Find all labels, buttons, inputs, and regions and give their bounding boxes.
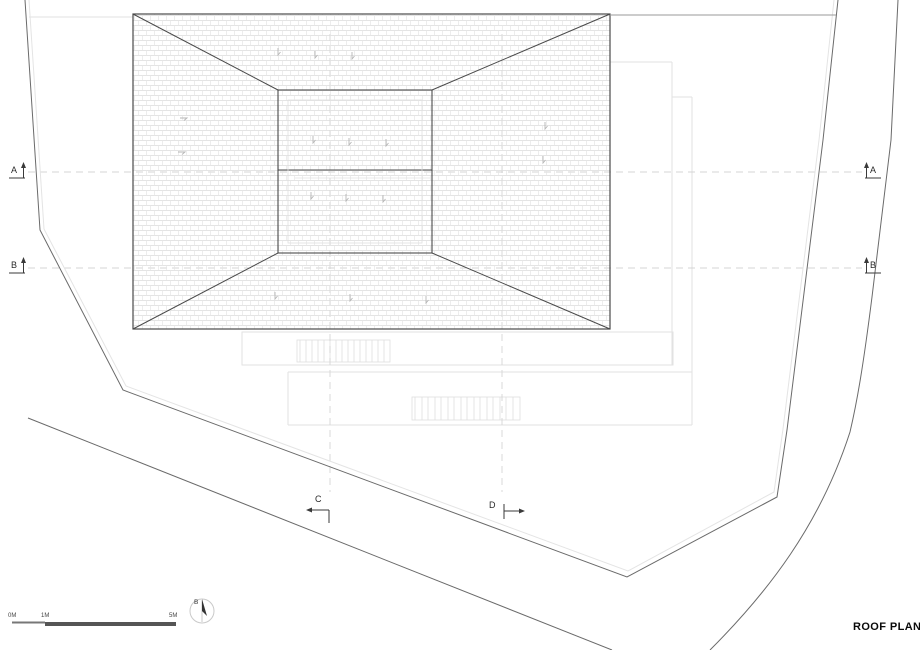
stairs-lower [412,397,520,420]
drawing-title: ROOF PLAN [853,622,920,633]
plan-linework [0,0,920,650]
section-label-a-right: A [870,166,876,175]
scale-label-1m: 1M [41,613,49,619]
north-arrow-label: B [194,600,198,607]
section-label-b-right: B [870,261,876,270]
section-label-a-left: A [11,166,17,175]
scale-label-0m: 0M [8,613,16,619]
scale-label-5m: 5M [169,613,177,619]
scale-bar [12,622,176,627]
roof-plan-sheet: A B A B C D 0M 1M 5M B ROOF PLAN [0,0,920,650]
section-label-c: C [315,495,322,504]
section-label-d: D [489,501,496,510]
section-label-b-left: B [11,261,17,270]
roof [133,14,610,329]
stairs-upper [297,340,390,362]
